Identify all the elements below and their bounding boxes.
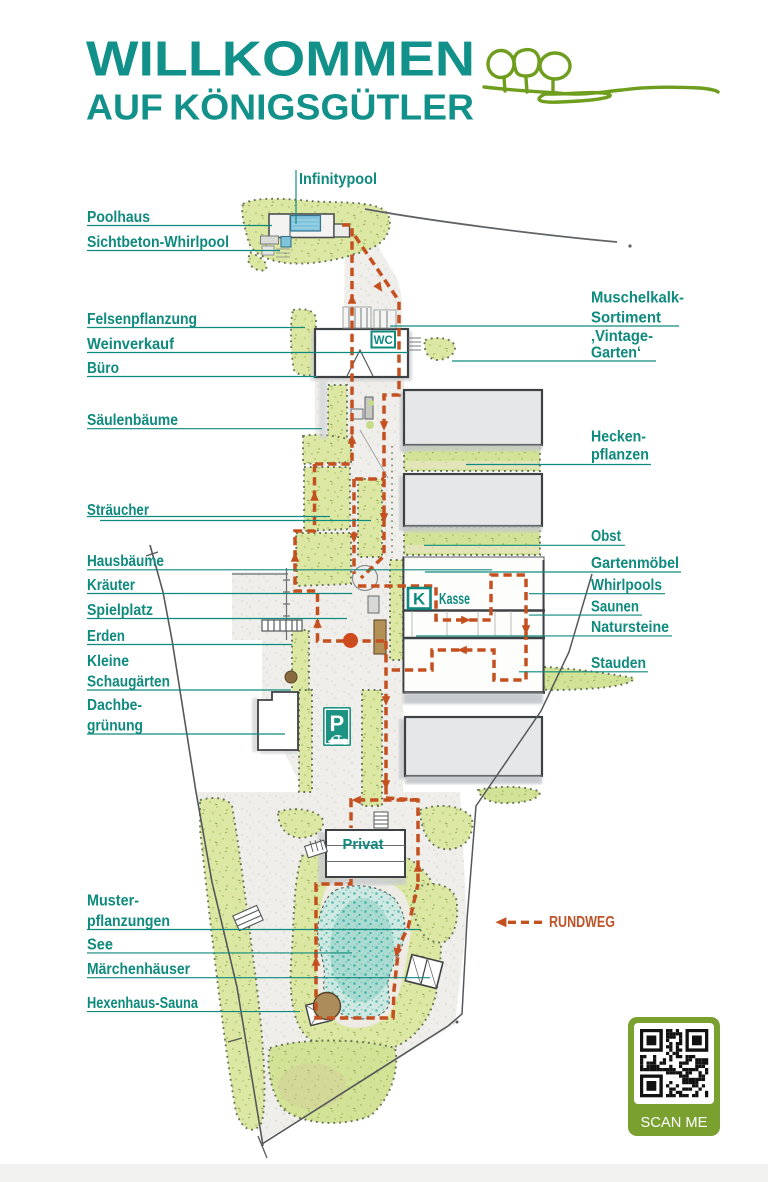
- svg-text:K: K: [413, 590, 426, 609]
- svg-text:RUNDWEG: RUNDWEG: [549, 914, 615, 931]
- svg-text:Natursteine: Natursteine: [591, 619, 669, 636]
- svg-text:WC: WC: [374, 335, 393, 347]
- svg-text:Muster-: Muster-: [87, 893, 139, 910]
- svg-text:Infinitypool: Infinitypool: [299, 171, 377, 188]
- svg-text:See: See: [87, 937, 113, 954]
- svg-text:Kasse: Kasse: [439, 591, 470, 608]
- svg-text:Märchenhäuser: Märchenhäuser: [87, 961, 190, 978]
- svg-text:Felsenpflanzung: Felsenpflanzung: [87, 311, 197, 328]
- svg-text:Kräuter: Kräuter: [87, 577, 135, 594]
- svg-text:Hecken-: Hecken-: [591, 429, 646, 446]
- svg-text:Hexenhaus-Sauna: Hexenhaus-Sauna: [87, 995, 198, 1012]
- svg-text:Stauden: Stauden: [591, 655, 646, 672]
- svg-text:AUF KÖNIGSGÜTLER: AUF KÖNIGSGÜTLER: [86, 87, 474, 128]
- svg-text:Büro: Büro: [87, 360, 119, 377]
- svg-text:SCAN ME: SCAN ME: [641, 1115, 708, 1131]
- svg-text:Spielplatz: Spielplatz: [87, 602, 153, 619]
- svg-text:P: P: [329, 711, 344, 736]
- svg-text:Whirlpools: Whirlpools: [591, 577, 662, 594]
- svg-text:Dachbe-: Dachbe-: [87, 697, 142, 714]
- svg-text:Saunen: Saunen: [591, 599, 639, 616]
- svg-text:‚Vintage-: ‚Vintage-: [591, 328, 653, 345]
- svg-text:WILLKOMMEN: WILLKOMMEN: [86, 32, 475, 87]
- svg-text:pflanzen: pflanzen: [591, 447, 649, 464]
- svg-text:Kleine: Kleine: [87, 653, 129, 670]
- svg-text:Sträucher: Sträucher: [87, 502, 149, 519]
- svg-text:Sichtbeton-Whirlpool: Sichtbeton-Whirlpool: [87, 234, 229, 251]
- svg-text:Erden: Erden: [87, 628, 125, 645]
- svg-text:Poolhaus: Poolhaus: [87, 209, 150, 226]
- svg-text:Hausbäume: Hausbäume: [87, 553, 164, 570]
- svg-text:Privat: Privat: [343, 836, 384, 853]
- svg-text:Garten‘: Garten‘: [591, 345, 641, 362]
- svg-text:Weinverkauf: Weinverkauf: [87, 336, 175, 353]
- svg-text:Schaugärten: Schaugärten: [87, 674, 170, 691]
- svg-text:pflanzungen: pflanzungen: [87, 913, 170, 930]
- svg-text:Obst: Obst: [591, 528, 621, 545]
- svg-text:Muschelkalk-: Muschelkalk-: [591, 290, 684, 307]
- svg-text:Säulenbäume: Säulenbäume: [87, 412, 178, 429]
- svg-text:Gartenmöbel: Gartenmöbel: [591, 555, 679, 572]
- svg-text:Sortiment: Sortiment: [591, 310, 661, 327]
- svg-text:grünung: grünung: [87, 718, 143, 735]
